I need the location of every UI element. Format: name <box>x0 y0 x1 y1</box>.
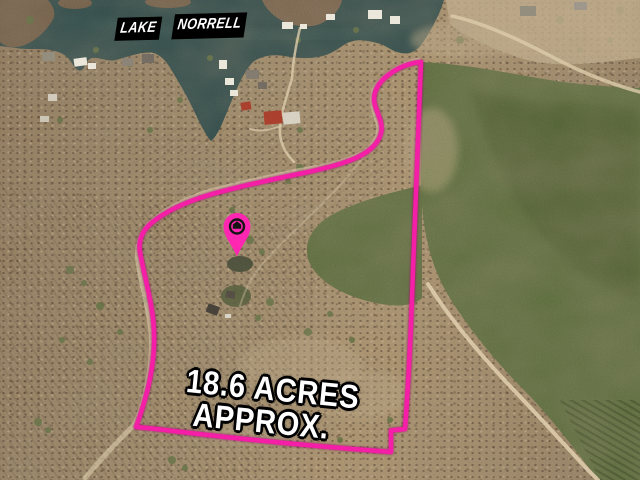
lake-name-label: LAKE NORRELL <box>114 14 257 41</box>
aerial-listing-photo: LAKE NORRELL 18.6 ACRES APPROX. <box>0 0 640 480</box>
lake-name-word-1: LAKE <box>114 17 162 41</box>
lake-name-word-2: NORRELL <box>171 12 247 39</box>
acreage-label: 18.6 ACRES APPROX. <box>182 364 344 445</box>
